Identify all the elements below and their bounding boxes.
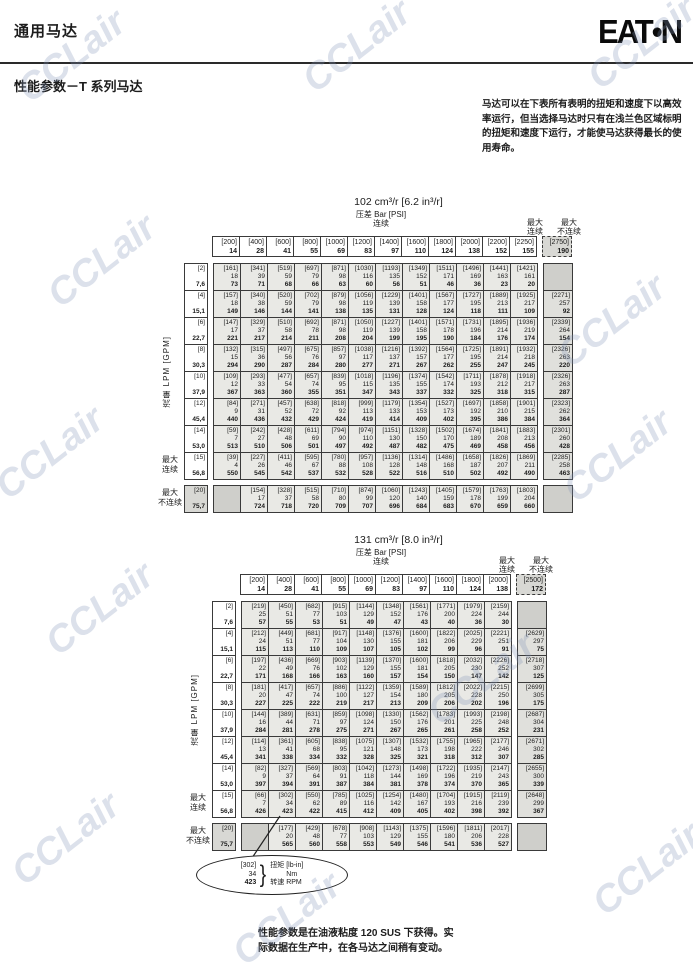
cell-line: 103 [350,833,376,841]
cell-line: 56,8 [185,470,207,478]
cell-line: 258 [544,462,572,470]
max-intermittent-cell: [2687]304231 [517,709,547,737]
cell-line: [1496] [457,265,483,273]
cell-line: 205 [431,665,457,673]
cell-line: 63 [322,281,348,289]
cell-line: [14] [185,427,207,435]
data-cell: [1589]180209 [403,682,431,710]
cell-line: 227 [242,700,268,708]
data-cell: [605]68334 [295,736,323,764]
cell-line: [1330] [377,711,403,719]
cell-line: 52 [268,408,294,416]
cell-line: 560 [296,841,322,849]
data-cell: [903]102163 [322,655,350,683]
cell-line: 104 [323,638,349,646]
cell-line: 97 [323,719,349,727]
cell-line: 456 [511,443,537,451]
max-intermittent-header-cell: [2750]190 [542,236,572,257]
row-header-cell: [12]45,4 [184,398,208,426]
cell-line: 77 [296,638,322,646]
row-header-cell: [12]45,4 [212,736,236,764]
cell-line: [1803] [511,487,537,495]
cell-line: 76 [295,354,321,362]
spacer [158,236,213,257]
cell-line: [800] [322,577,348,586]
cell-line: 111 [484,308,510,316]
cell-line: 55 [294,248,320,257]
cell-line: [154] [241,487,267,495]
cell-line: 130 [350,638,376,646]
data-cell: [1405]159683 [429,485,457,513]
data-cell: [1038]117277 [348,344,376,372]
continuous-label: 连续 [213,219,549,228]
data-cell: [1307]148325 [376,736,404,764]
cell-line: 141 [295,308,321,316]
data-cell: [569]64391 [295,763,323,791]
cell-line: [1193] [376,265,402,273]
data-cell: [1562]176265 [403,709,431,737]
row-header-cell: [4]15,1 [212,628,236,656]
eaton-logo: EAT•N [598,13,681,52]
cell-line: [1243] [403,487,429,495]
cell-line: 422 [296,808,322,816]
data-cell: [1060]120696 [375,485,403,513]
cell-line: 58 [268,327,294,335]
pressure-header-cell: [200]14 [240,574,268,595]
data-cell: [1441]16323 [483,263,511,291]
data-cell: [879]98138 [321,290,349,318]
cell-line: 113 [349,408,375,416]
cell-line: [631] [296,711,322,719]
cell-line: 177 [430,354,456,362]
cell-line: 374 [431,781,457,789]
cell-line: 178 [430,327,456,335]
cell-line: 243 [485,773,511,781]
legend-label-rpm: 转速 RPM [270,879,302,888]
data-cell: [1144]12949 [349,601,377,629]
table-row: [4]15,1[157]18149[340]38146[520]59144[70… [158,290,628,318]
cell-line: 246 [485,746,511,754]
data-cell: [1401]158195 [402,317,430,345]
cell-line: 146 [241,308,267,316]
cell-line: 23 [484,281,510,289]
cell-line: 77 [323,833,349,841]
footer-note: 性能参数是在油液粘度 120 SUS 下获得。实 际数据在生产中，在各马达之间稍… [258,926,454,956]
max-intermittent-cell: [2326]263287 [543,371,573,399]
cell-line: 125 [518,673,546,681]
cell-line: [1579] [457,487,483,495]
data-cell: [1822]20699 [430,628,458,656]
cell-line: 168 [269,673,295,681]
cell-line: 367 [518,808,546,816]
data-cell: [1811]206536 [457,823,485,851]
cell-line: [181] [242,684,268,692]
data-cell: [638]72429 [294,398,322,426]
cell-line: 155 [510,248,536,257]
cell-line: 208 [322,335,348,343]
cell-line: 510 [241,443,267,451]
data-cell: [1783]201261 [430,709,458,737]
cell-line: [1725] [457,346,483,354]
cell-line: 105 [377,646,403,654]
cell-line: [302] [269,792,295,800]
table-row: [6]22,7[197]22171[436]49168[669]76166[90… [186,655,656,683]
data-cell: [59]7513 [213,425,241,453]
cell-line: [20] [213,825,235,833]
cell-line: 536 [458,841,484,849]
section-title: 性能参数－T 系列马达 [14,76,143,95]
cell-line: [219] [242,603,268,611]
cell-line: [999] [349,400,375,408]
cell-line: [2629] [518,630,546,638]
cell-line: [1727] [457,292,483,300]
cell-line: 135 [349,308,375,316]
row-header-cell: [10]37,9 [212,709,236,737]
cell-line: 231 [518,727,546,735]
cell-line: 37,9 [213,727,235,735]
data-cell: [1122]127217 [349,682,377,710]
data-cell: [1704]193402 [430,790,458,818]
data-cell: [1935]219370 [457,763,485,791]
cell-line: 395 [457,416,483,424]
data-cell: [785]89415 [322,790,350,818]
cell-line: [2226] [485,657,511,665]
header-row: [200]14[400]28[600]41[800]55[1000]69[120… [158,236,628,257]
table-row: [14]53,0[59]7513[242]27510[428]48506[611… [158,425,628,453]
cell-line: 40 [431,619,457,627]
cell-line: 174 [511,335,537,343]
data-cell: [1098]124271 [349,709,377,737]
cell-line: 225 [269,700,295,708]
cell-line: 180 [404,692,430,700]
max-continuous-side-label: 最大连续 [156,455,184,474]
cell-line: [1915] [458,792,484,800]
table-row: [4]15,1[212]24115[449]51113[681]77110[91… [186,628,656,656]
data-cell: [428]48506 [267,425,295,453]
cell-line: [114] [242,738,268,746]
cell-line: [1401] [403,292,429,300]
cell-line: 391 [296,781,322,789]
cell-line: 537 [295,470,321,478]
cell-line: 54 [268,381,294,389]
cell-line: 39 [241,273,267,281]
cell-line: [1374] [403,373,429,381]
cell-line: [2326] [544,373,572,381]
cell-line: 206 [431,700,457,708]
data-cell: [1148]130107 [349,628,377,656]
cell-line: 154 [377,692,403,700]
cell-line: 475 [430,443,456,451]
cell-line: [1812] [431,684,457,692]
cell-line: [839] [322,373,348,381]
cell-line: [8] [185,346,207,354]
cell-line: [550] [296,792,322,800]
cell-line: [1400] [375,239,401,248]
cell-line: 264 [544,327,572,335]
cell-line: 332 [430,389,456,397]
cell-line: [1891] [484,346,510,354]
cell-line: 131 [376,308,402,316]
cell-line: 193 [457,381,483,389]
data-cell: [181]20227 [241,682,269,710]
row-header-cell: [8]30,3 [212,682,236,710]
cell-line: [1143] [377,825,403,833]
cell-line: [2017] [485,825,511,833]
data-cell: [1915]216398 [457,790,485,818]
cell-line: 343 [376,389,402,397]
cell-line: 251 [485,638,511,646]
data-cell: [1925]217109 [510,290,538,318]
cell-line: 77 [296,611,322,619]
cell-line: 339 [518,781,546,789]
cell-line: [10] [213,711,235,719]
cell-line: 138 [322,308,348,316]
cell-line: 228 [485,833,511,841]
data-cell: [2022]228202 [457,682,485,710]
data-cell: [271]31436 [240,398,268,426]
cell-line: 206 [431,638,457,646]
max-intermittent-cell: [2326]263220 [543,344,573,372]
cell-line: 532 [322,470,348,478]
cell-line: 258 [458,727,484,735]
cell-line: 196 [457,327,483,335]
data-cell: [1376]155105 [376,628,404,656]
max-intermittent-cell [543,485,573,513]
data-cell: [2147]243365 [484,763,512,791]
cell-line: [871] [322,265,348,273]
cell-line: 37 [268,495,294,503]
cell-line: [212] [242,630,268,638]
table-row: [10]37,9[109]12367[293]33363[477]54360[6… [158,371,628,399]
data-cell: [1711]193325 [456,371,484,399]
cell-line: 204 [349,335,375,343]
data-cell: [1936]219174 [510,317,538,345]
cell-line: 14 [241,586,267,595]
cell-line: 367 [214,389,240,397]
cell-line: 302 [518,746,546,754]
cell-line: [2326] [544,346,572,354]
max-continuous-label: 最大连续 [499,556,515,574]
cell-line: [1901] [511,400,537,408]
cell-line: 60 [349,281,375,289]
cell-line: 341 [242,754,268,762]
cell-line: 325 [457,389,483,397]
cell-line: 177 [430,300,456,308]
cell-line: 148 [377,746,403,754]
cell-line: 213 [511,435,537,443]
cell-line: [10] [185,373,207,381]
cell-line: [2147] [485,765,511,773]
cell-line: 355 [295,389,321,397]
document-page: 通用马达 EAT•N 性能参数－T 系列马达 马达可以在下表所有表明的扭矩和速度… [0,0,693,970]
data-cell: [2215]250196 [484,682,512,710]
cell-line: 15,1 [185,308,207,316]
data-cell: [1818]205150 [430,655,458,683]
pressure-header-cell: [1200]83 [375,574,403,595]
cell-line: 387 [323,781,349,789]
data-cell: [1179]133414 [375,398,403,426]
cell-line: [2200] [483,239,509,248]
table-row: [12]45,4[114]13341[361]41338[605]68334[8… [186,736,656,764]
cell-line: 158 [403,300,429,308]
cell-line: [1932] [511,346,537,354]
pressure-header-cell: [1400]97 [402,574,430,595]
cell-line: [1122] [350,684,376,692]
cell-line: [15] [185,454,207,462]
cell-line: 124 [429,248,455,257]
data-cell: [1314]148516 [402,452,430,480]
data-cell: [1136]128522 [375,452,403,480]
cell-line: 68 [268,281,294,289]
cell-line: 48 [296,833,322,841]
data-cell: [389]44281 [268,709,296,737]
cell-line: 74 [295,381,321,389]
cell-line: [1421] [511,265,537,273]
cell-line: [1000] [349,577,375,586]
cell-line: [59] [214,427,240,435]
cell-line: 513 [214,443,240,451]
cell-line: 20 [242,692,268,700]
cell-line: [1589] [404,684,430,692]
cell-line: [1042] [350,765,376,773]
cell-line: 137 [376,354,402,362]
cell-line: 558 [323,841,349,849]
cell-line: 181 [404,638,430,646]
cell-line: 190 [430,335,456,343]
cell-line: [1800] [429,239,455,248]
data-cell: [1532]173321 [403,736,431,764]
cell-line: 155 [403,381,429,389]
max-intermittent-label: 最大不连续 [557,218,581,236]
cell-line: 217 [241,335,267,343]
cell-line: 300 [518,773,546,781]
cell-line: 129 [377,833,403,841]
cell-line: 46 [430,281,456,289]
cell-line: 205 [431,692,457,700]
data-cell: [1480]167405 [403,790,431,818]
cell-line: [1600] [402,239,428,248]
cell-line: 44 [269,719,295,727]
cell-line: [1925] [511,292,537,300]
data-cell: [227]26545 [240,452,268,480]
cell-line: 56 [268,354,294,362]
cell-line: [1965] [458,738,484,746]
cell-line: 135 [376,381,402,389]
cell-line: 108 [349,462,375,470]
cell-line: [1200] [376,577,402,586]
data-cell: [1901]215384 [510,398,538,426]
cell-line: [780] [322,454,348,462]
cell-line: 315 [511,389,537,397]
cell-line: 113 [269,646,295,654]
cell-line: 75,7 [213,841,235,849]
cell-line: [1498] [404,765,430,773]
cell-line: 263 [544,381,572,389]
pressure-header-cell: [400]28 [239,236,267,257]
cell-line: 150 [431,673,457,681]
data-cell: [1763]199659 [483,485,511,513]
cell-line: 409 [403,416,429,424]
cell-line: 212 [484,381,510,389]
cell-line: 98 [322,327,348,335]
table-subheader: 压差 Bar [PSI]连续最大连续最大不连续 [213,210,584,236]
data-cell: [515]58720 [294,485,322,513]
cell-line: 294 [214,362,240,370]
cell-line: 26 [241,462,267,470]
data-cell: [161]1873 [213,263,241,291]
cell-line: 527 [485,841,511,849]
cell-line: 181 [404,665,430,673]
cell-line: 88 [322,462,348,470]
cell-line: [436] [269,657,295,665]
data-cell: [611]69501 [294,425,322,453]
cell-line: [1392] [403,346,429,354]
cell-line: 670 [457,503,483,511]
data-cell: [1564]177262 [429,344,457,372]
cell-line: [838] [323,738,349,746]
cell-line: 696 [376,503,402,511]
data-cell: [1771]20040 [430,601,458,629]
cell-line: [1658] [457,454,483,462]
cell-line: [2285] [544,454,572,462]
cell-line: 155 [377,638,403,646]
table-rows: [2]7,6[219]2557[450]5155[682]7753[915]10… [186,601,656,818]
cell-line: 129 [350,665,376,673]
data-cell: [1348]15247 [376,601,404,629]
cell-line: 53,0 [213,781,235,789]
cell-line: 47 [377,619,403,627]
cell-line: 370 [458,781,484,789]
cell-line: 149 [214,308,240,316]
cell-line: 59 [268,273,294,281]
cell-line: 250 [485,692,511,700]
cell-line: 75 [518,646,546,654]
cell-line: [1811] [458,825,484,833]
cell-line: [12] [185,400,207,408]
cell-line: 110 [349,435,375,443]
cell-line: [457] [268,400,294,408]
data-cell: [329]37217 [240,317,268,345]
table-rows: [2]7,6[161]1873[341]3971[519]5968[697]79… [158,263,628,480]
cell-line: 351 [322,389,348,397]
pressure-header-cell: [2250]155 [509,236,537,257]
cell-line: 263 [544,354,572,362]
cell-line: 144 [268,308,294,316]
cell-line: 195 [457,300,483,308]
data-cell: [1196]135343 [375,371,403,399]
pressure-header-cell: [2200]152 [482,236,510,257]
cell-line: 219 [511,327,537,335]
pressure-header-cell: [2000]138 [483,574,511,595]
cell-line: 198 [431,746,457,754]
cell-line: [2271] [544,292,572,300]
cell-line: 7 [214,435,240,443]
cell-line: 91 [323,773,349,781]
cell-line: 118 [457,308,483,316]
cell-line: 516 [403,470,429,478]
cell-line: [1098] [350,711,376,719]
data-cell: [1254]142409 [376,790,404,818]
intro-paragraph: 马达可以在下表所有表明的扭矩和速度下以高效率运行，但当选择马达时只有在浅兰色区域… [482,98,686,156]
max-intermittent-cell: [2285]258463 [543,452,573,480]
cell-line: 275 [323,727,349,735]
data-cell [213,485,241,513]
cell-line: [692] [295,319,321,327]
cell-line: [1273] [377,765,403,773]
data-cell: [803]91387 [322,763,350,791]
cell-line: [510] [268,319,294,327]
data-cell: [411]46542 [267,452,295,480]
